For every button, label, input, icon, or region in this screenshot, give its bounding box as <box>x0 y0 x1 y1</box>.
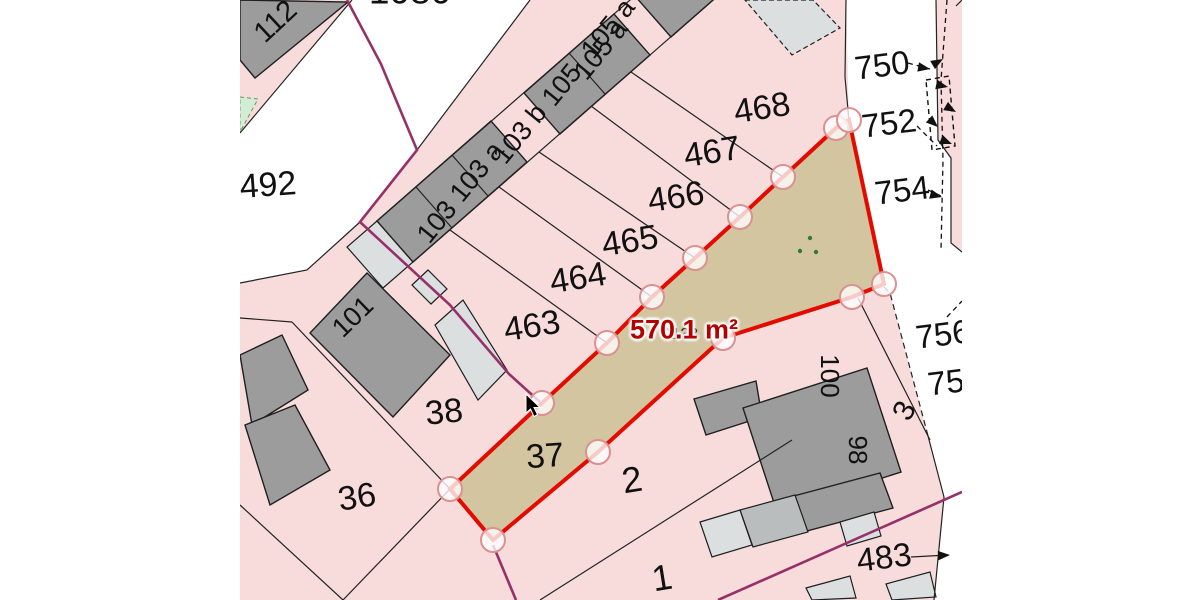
parcel-label-468: 468 <box>731 87 792 129</box>
parcel-label-466: 466 <box>645 176 706 218</box>
vegetation-dot-icon <box>798 249 802 253</box>
building-label-100: 100 <box>817 354 843 397</box>
parcel-label-37: 37 <box>525 438 565 475</box>
parcel-vertex-handle[interactable] <box>683 246 707 270</box>
parcel-vertex-handle[interactable] <box>481 528 505 552</box>
parcel-vertex-handle[interactable] <box>771 165 795 189</box>
parcel-label-36: 36 <box>336 477 379 516</box>
parcel-label-464: 464 <box>547 257 608 299</box>
parcel-label-492: 492 <box>240 166 297 204</box>
selected-parcel-area-label: 570.1 m² <box>630 317 738 344</box>
parcel-label-38: 38 <box>423 393 464 431</box>
screenshot-stage: 1133 570.1 m² 10804924684674664654644633… <box>0 0 1200 600</box>
parcel-label-750: 750 <box>853 45 912 84</box>
parcel-vertex-handle[interactable] <box>837 108 861 132</box>
parcel-label-75: 75 <box>926 363 962 400</box>
parcel-vertex-handle[interactable] <box>872 272 896 296</box>
parcel-vertex-handle[interactable] <box>728 205 752 229</box>
parcel-vertex-handle[interactable] <box>595 331 619 355</box>
parcel-vertex-handle[interactable] <box>840 285 864 309</box>
parcel-label-756: 756 <box>914 314 962 353</box>
parcel-label-483: 483 <box>855 537 914 576</box>
parcel-label-752: 752 <box>860 103 919 142</box>
parcel-vertex-handle[interactable] <box>586 440 610 464</box>
vegetation-dot-icon <box>814 250 818 254</box>
parcel-label-467: 467 <box>681 131 742 173</box>
parcel-label-754: 754 <box>873 170 932 209</box>
parcel-label-463: 463 <box>501 305 562 347</box>
building-label-98: 98 <box>845 436 871 465</box>
map-canvas[interactable]: 1133 570.1 m² 10804924684674664654644633… <box>240 0 962 600</box>
vegetation-dot-icon <box>808 236 812 240</box>
parcel-label-1080: 1080 <box>369 0 451 10</box>
parcel-vertex-handle[interactable] <box>438 477 462 501</box>
parcel-label-465: 465 <box>599 220 660 262</box>
parcel-vertex-handle[interactable] <box>640 285 664 309</box>
